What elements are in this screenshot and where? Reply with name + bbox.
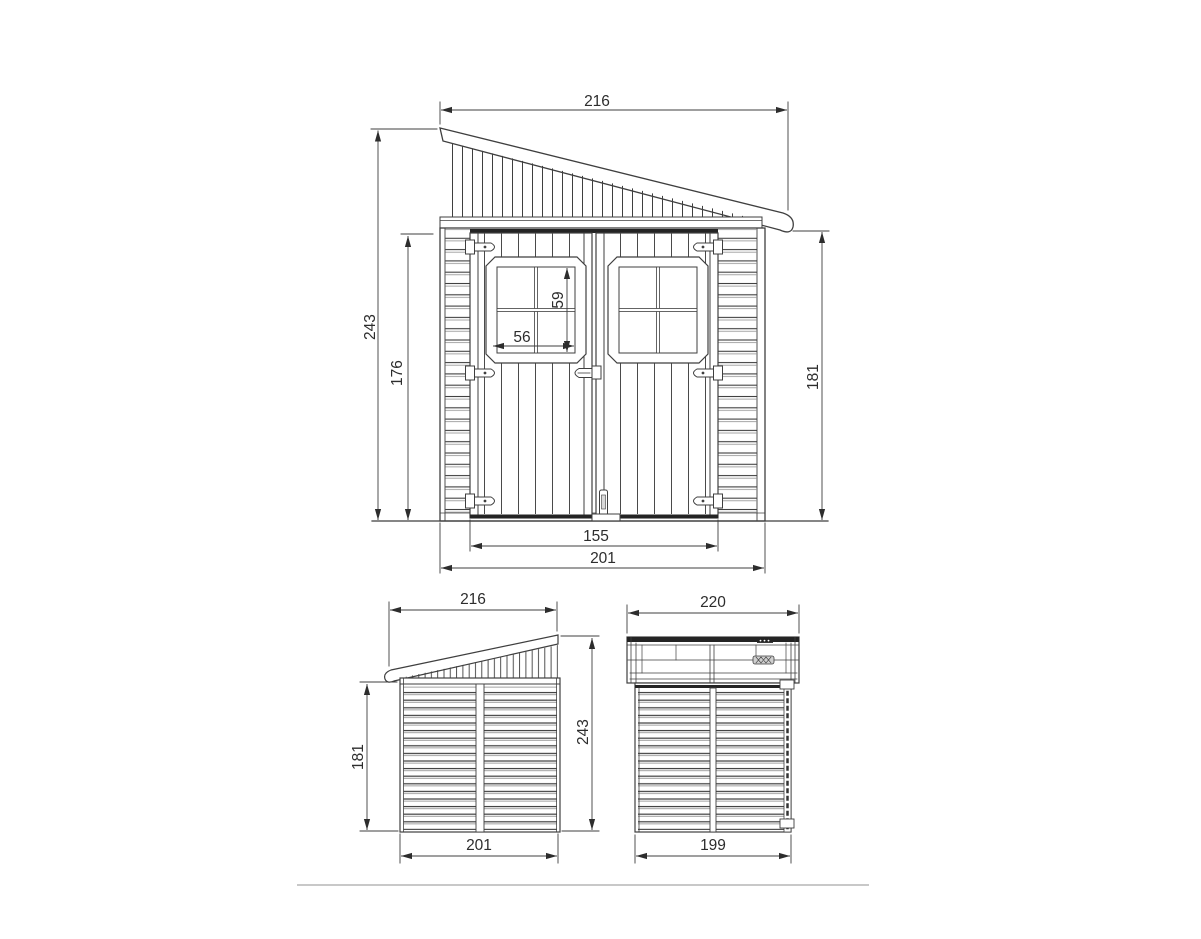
- dim-door-opening-width: 155: [583, 528, 609, 545]
- corner-bracket-top: [780, 680, 794, 689]
- rear-wall: [635, 680, 794, 832]
- front-elevation-view: 216 243 176 181 59 56 155 201: [362, 93, 829, 573]
- rear-elevation-view: 220 199: [627, 594, 799, 863]
- dim-front-overall-height: 243: [362, 314, 379, 340]
- dim-front-roof-width: 216: [584, 93, 610, 110]
- side-center-post: [476, 684, 484, 832]
- dim-rear-body-width: 199: [700, 837, 726, 854]
- dim-front-door-height: 176: [389, 360, 406, 386]
- front-roof: [440, 128, 793, 232]
- dim-front-wall-height: 181: [805, 364, 822, 390]
- dim-side-roof-depth: 216: [460, 591, 486, 608]
- window-muntin-horizontal: [619, 309, 697, 312]
- corner-bracket-bottom: [780, 819, 794, 828]
- dim-front-body-width: 201: [590, 550, 616, 567]
- page-divider-line: [297, 884, 869, 886]
- dim-side-wall-height: 181: [350, 744, 367, 770]
- side-roof: [385, 635, 560, 682]
- side-wall: [400, 678, 560, 832]
- left-door-window: [486, 257, 586, 363]
- rear-center-post: [710, 688, 716, 832]
- dim-side-body-depth: 201: [466, 837, 492, 854]
- dim-window-width: 56: [513, 329, 530, 346]
- dim-rear-roof-width: 220: [700, 594, 726, 611]
- front-right-plank-strip: [718, 229, 757, 513]
- technical-drawing-page: 216 243 176 181 59 56 155 201: [0, 0, 1201, 939]
- rear-roof-structure: [627, 637, 799, 683]
- shed-technical-drawing: 216 243 176 181 59 56 155 201: [0, 0, 1201, 939]
- dim-window-height: 59: [550, 291, 567, 308]
- dim-side-overall-height: 243: [575, 719, 592, 745]
- roof-vent-top: [757, 638, 773, 643]
- side-elevation-view: 216 181 243 201: [350, 591, 599, 863]
- right-door-window: [608, 257, 708, 363]
- roof-vent-grille: [753, 656, 774, 664]
